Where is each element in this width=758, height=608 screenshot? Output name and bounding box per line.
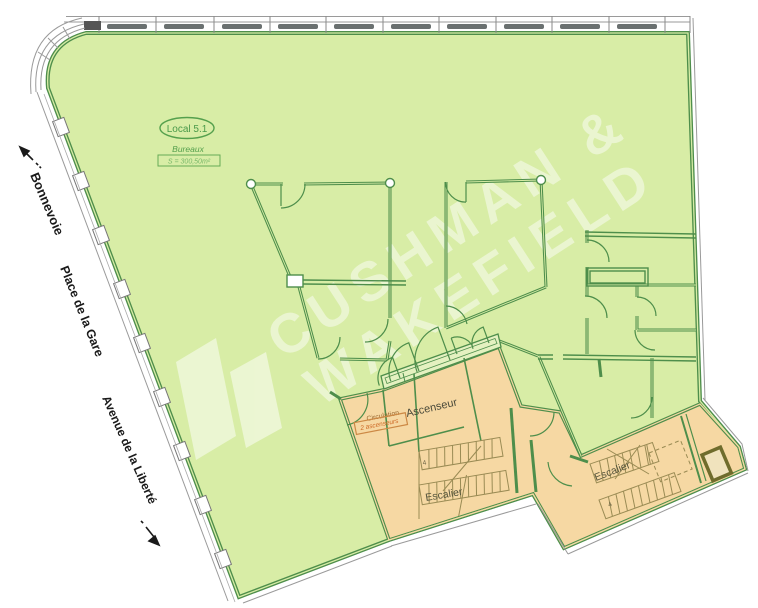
svg-text:Bureaux: Bureaux bbox=[172, 144, 204, 154]
svg-text:S = 300,50m²: S = 300,50m² bbox=[168, 159, 211, 166]
svg-text:Local 5.1: Local 5.1 bbox=[167, 124, 208, 135]
